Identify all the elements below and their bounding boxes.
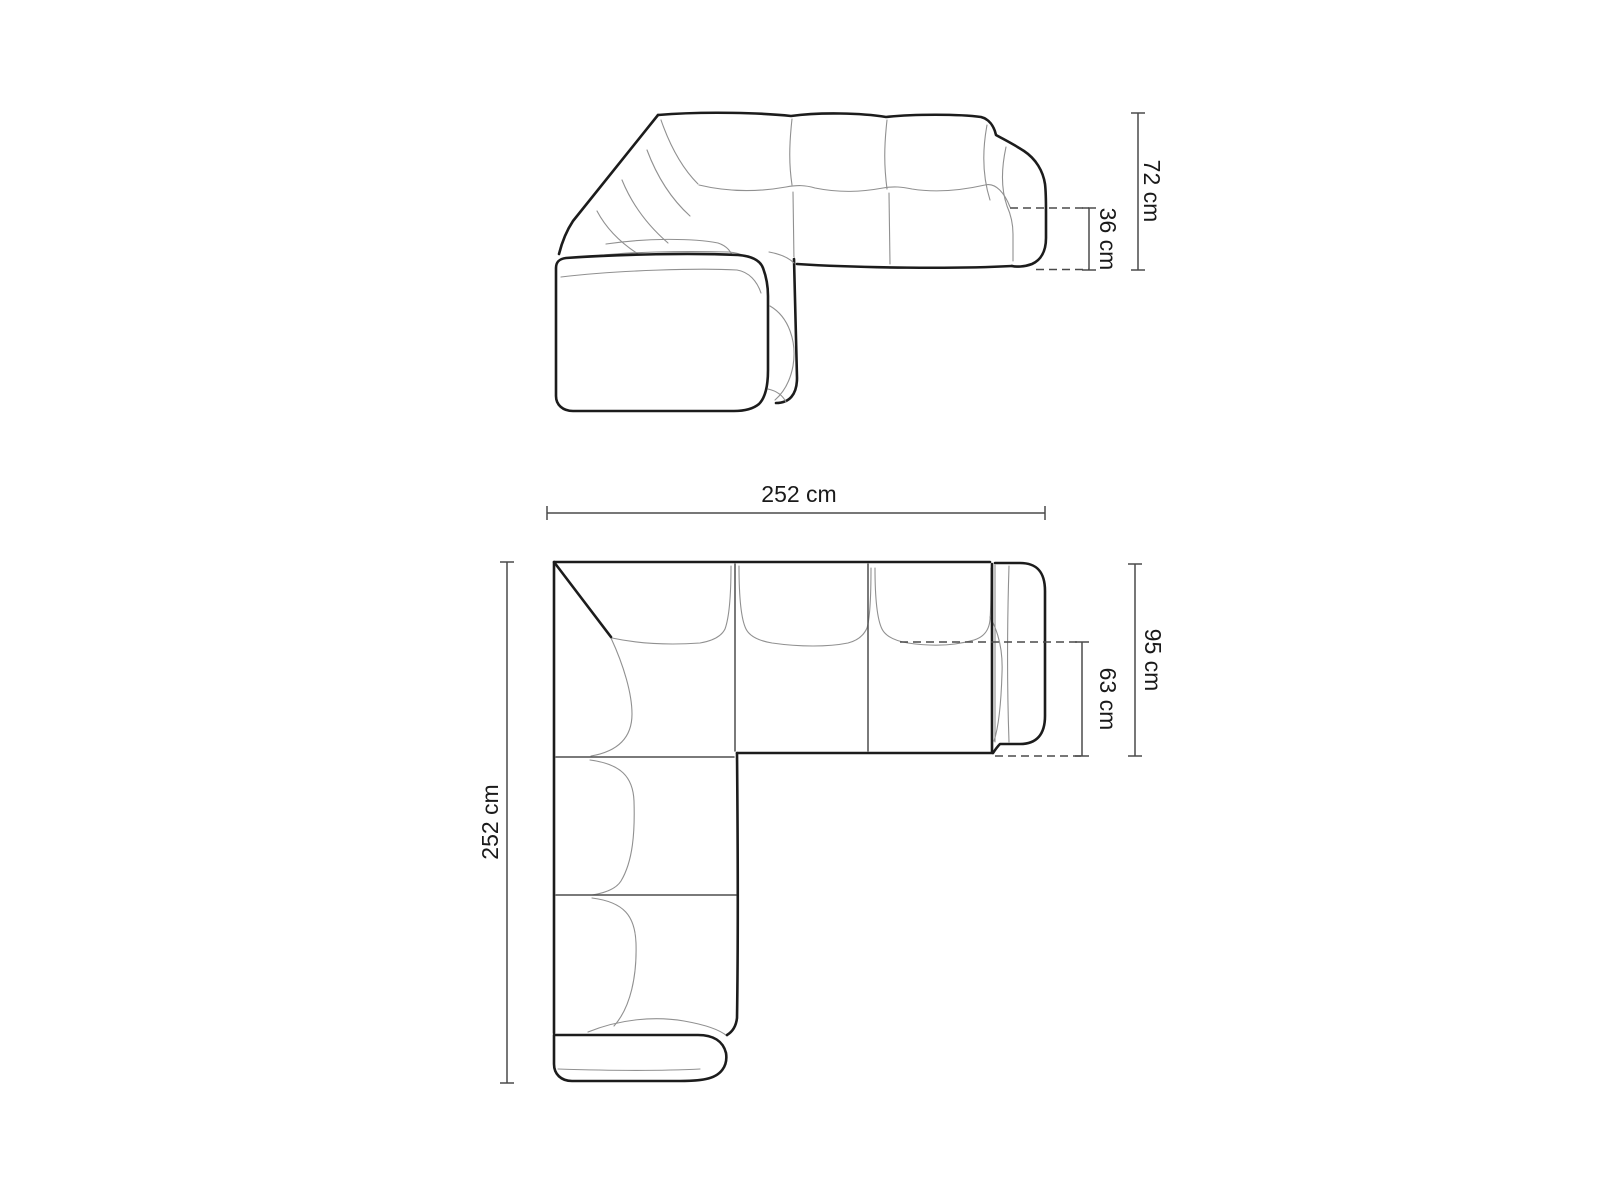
diagram-background [0, 0, 1600, 1200]
middle-module-face [766, 257, 797, 403]
dim-label-seat-depth: 63 cm [1095, 668, 1121, 731]
sofa-dimension-diagram-page: 36 cm 72 cm [0, 0, 1600, 1200]
sofa-dimension-diagram: 36 cm 72 cm [0, 0, 1600, 1200]
dim-label-side-depth: 95 cm [1140, 629, 1166, 692]
dim-label-total-depth: 252 cm [477, 784, 503, 859]
dim-label-seat-height: 36 cm [1095, 208, 1121, 271]
dim-label-total-width: 252 cm [761, 481, 836, 507]
left-armrest-block [556, 254, 768, 411]
dim-label-total-height: 72 cm [1139, 160, 1165, 223]
